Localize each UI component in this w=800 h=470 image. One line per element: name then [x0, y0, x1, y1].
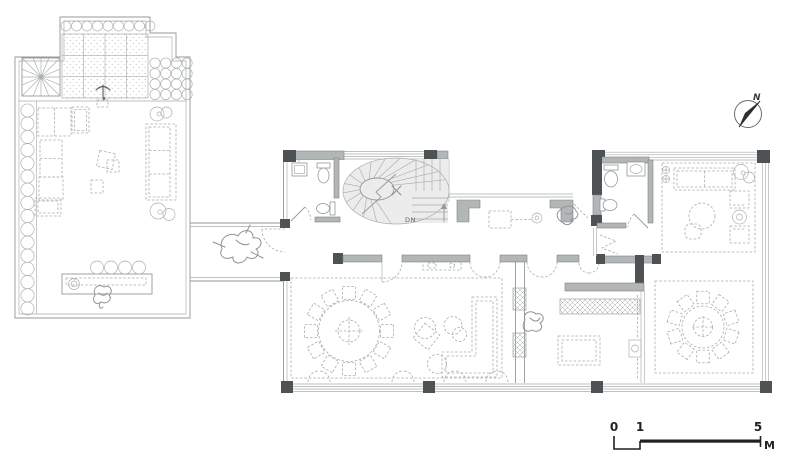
- armchair: [730, 191, 749, 208]
- pouf: [685, 224, 701, 239]
- armchair: [730, 226, 749, 243]
- bar-sink-icon: [69, 279, 80, 290]
- hedge-left-row: [21, 104, 34, 315]
- toilet-icon: [317, 163, 330, 183]
- casement-swings: [308, 371, 508, 382]
- porch-pier-left: [457, 200, 480, 222]
- main-building: DN: [280, 150, 772, 393]
- toilet-icon: [600, 199, 617, 211]
- scale-tick-0: 0: [610, 420, 618, 434]
- flower-rosette-icon: [662, 166, 669, 182]
- stair-direction-label: DN: [405, 216, 416, 224]
- round-coffee-table: [689, 203, 715, 229]
- parasol-planter-icon: [14, 50, 68, 104]
- bar-stools: [91, 261, 146, 274]
- lounge-right: [662, 163, 755, 252]
- outdoor-bar-counter: [62, 261, 152, 308]
- dining-area-left: [291, 278, 502, 378]
- side-table-icon: [733, 210, 747, 224]
- hedge-scallop-top: [61, 21, 155, 31]
- hallway-partition: [333, 253, 661, 282]
- toilet-icon: [604, 165, 618, 187]
- kitchen-counter: [423, 261, 461, 270]
- rug: [558, 336, 600, 365]
- folding-screen: [600, 235, 618, 254]
- corridor-figure-sketch: [523, 312, 543, 332]
- door-swing: [291, 207, 311, 221]
- powder-room-left: [291, 158, 340, 222]
- walkway-plant-sketch: [213, 225, 263, 263]
- powder-room-right: [591, 153, 653, 256]
- double-door-swing: [579, 263, 599, 273]
- outdoor-sofa-set: [35, 107, 176, 216]
- porch-pier-right: [550, 200, 573, 222]
- toilet-icon: [317, 202, 336, 215]
- tea-room: [558, 255, 645, 383]
- roof-terrace: [14, 17, 192, 318]
- floor-plan-page: DN: [0, 0, 800, 470]
- scale-bar: 0 1 5 M: [610, 420, 775, 452]
- side-table-icon: [629, 340, 641, 357]
- double-door-swing: [527, 262, 557, 277]
- family-lounge: [413, 297, 497, 377]
- flower-bowl-icon: [532, 213, 542, 223]
- corridor-feature-wall: [513, 262, 543, 383]
- door-swing: [382, 262, 402, 282]
- lazy-susan-icon: [692, 316, 714, 338]
- scale-unit-label: M: [764, 439, 775, 452]
- entry-walkway: [190, 223, 285, 281]
- potted-plant-icon: [734, 165, 755, 184]
- north-label: N: [753, 93, 761, 103]
- potted-plant-icon: [150, 107, 175, 221]
- sofa: [674, 168, 735, 190]
- scale-tick-5: 5: [754, 420, 762, 434]
- floor-plan-drawing: DN: [0, 0, 800, 470]
- north-arrow: N: [735, 93, 762, 128]
- bar-plant-sketch: [94, 286, 112, 304]
- spiral-staircase: DN: [343, 158, 449, 224]
- scale-tick-1: 1: [636, 420, 644, 434]
- double-door-swing: [470, 262, 500, 277]
- dining-area-right: [655, 281, 753, 373]
- lazy-susan-icon: [335, 317, 363, 345]
- walkway-door-swing: [262, 229, 285, 252]
- door-swing: [628, 214, 648, 228]
